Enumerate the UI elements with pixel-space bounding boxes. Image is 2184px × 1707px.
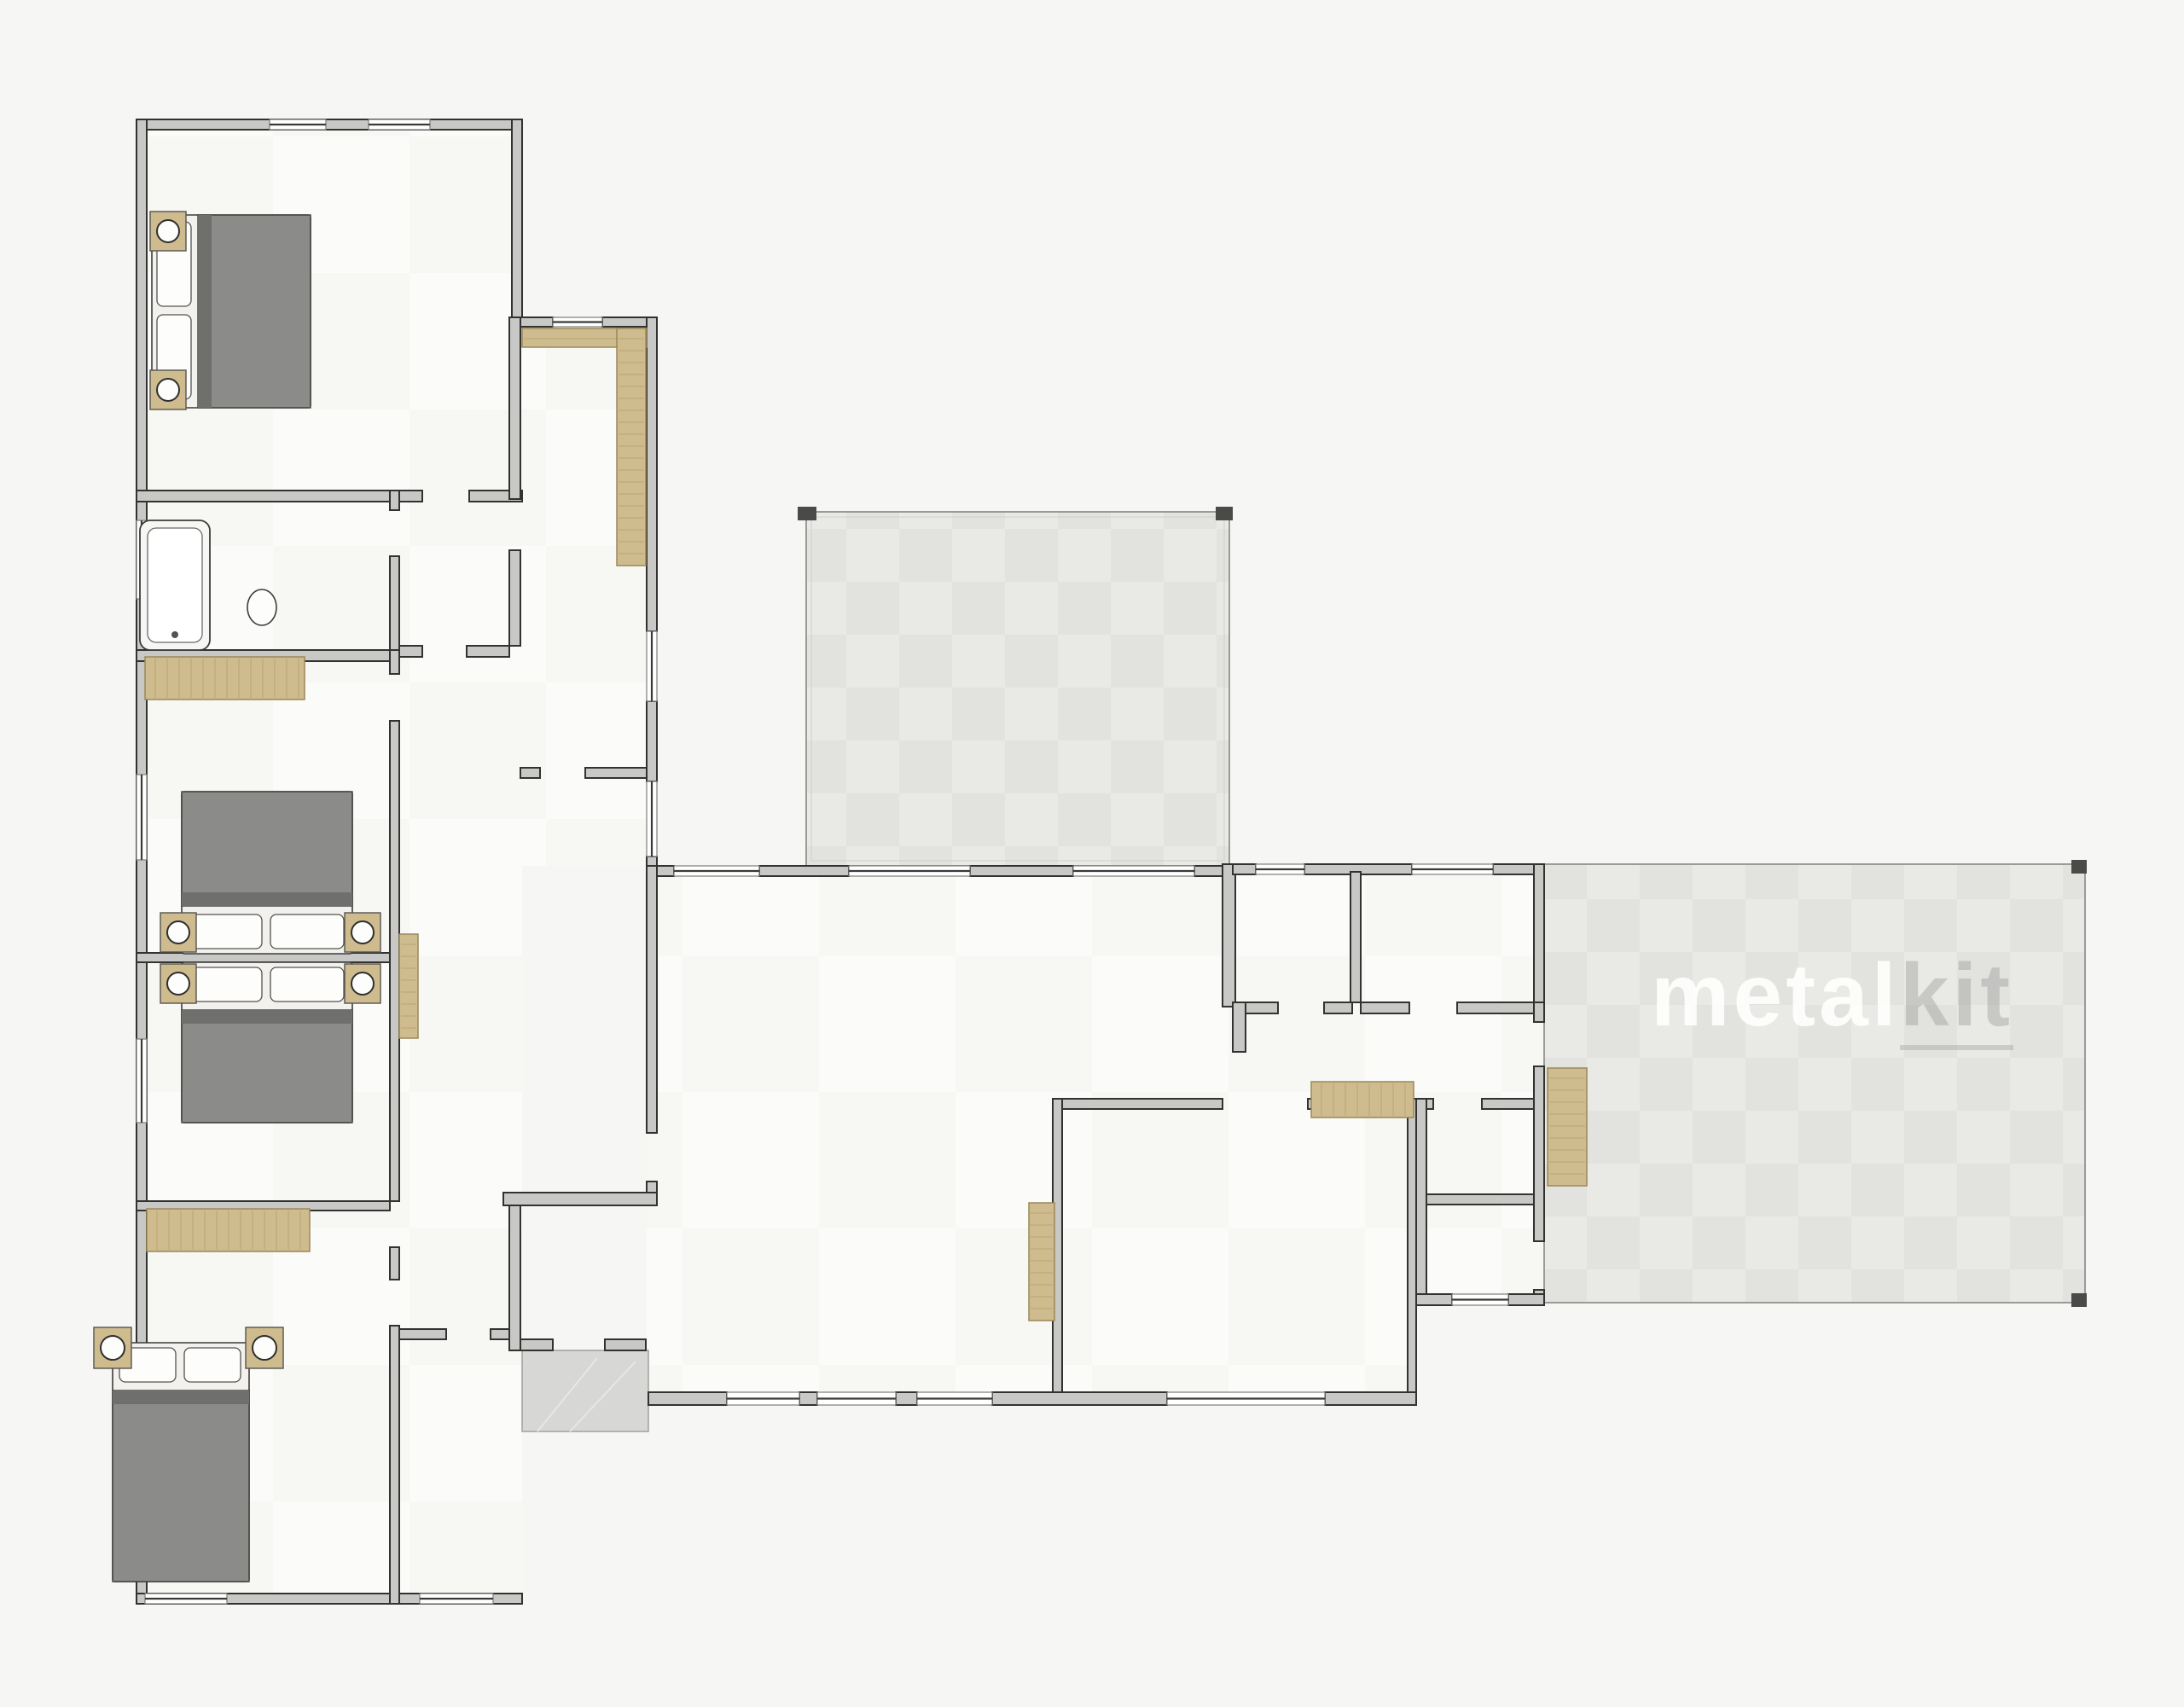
window-icon [647,631,657,701]
nightstand-icon [160,964,196,1003]
window-icon [369,119,430,130]
window-icon [917,1392,992,1405]
sideboard-icon [1029,1203,1054,1321]
nightstand-icon [94,1327,131,1368]
window-icon [674,866,759,876]
bed-dormitorio4-icon [113,1343,249,1582]
window-icon [1167,1392,1325,1405]
nightstand-icon [246,1327,283,1368]
bathtub-bano1-icon [140,520,210,650]
window-icon [647,781,657,856]
window-icon [553,317,602,327]
window-icon [1073,866,1194,876]
nightstand-icon [150,370,186,409]
nightstand-icon [160,913,196,952]
window-icon [1452,1294,1508,1305]
window-icon [145,1594,227,1604]
nightstand-icon [345,964,380,1003]
nightstand-icon [345,913,380,952]
window-icon [1256,864,1304,874]
entry-porch [522,1350,648,1431]
window-icon [270,119,326,130]
floorplan-drawing [0,0,2184,1707]
window-icon [817,1392,896,1405]
window-icon [420,1594,493,1604]
window-icon [136,775,147,860]
closet-icon [145,657,305,700]
window-icon [849,866,970,876]
wardrobe-icon [399,934,418,1038]
cabinet-icon [1311,1082,1414,1118]
bed-dormitorio3-icon [182,962,352,1123]
cabinet-icon [1548,1068,1587,1186]
floorplan-page: metalkit [0,0,2184,1707]
window-icon [727,1392,799,1405]
window-icon [1412,864,1493,874]
terraza-floor [798,507,1233,866]
wardrobe-icon [617,328,646,566]
window-icon [136,1039,147,1123]
estacionamiento-floor [1544,860,2087,1307]
bed-dormitorio2-icon [182,792,352,954]
closet-icon [147,1209,310,1251]
toilet-icon [247,589,276,625]
nightstand-icon [150,212,186,251]
